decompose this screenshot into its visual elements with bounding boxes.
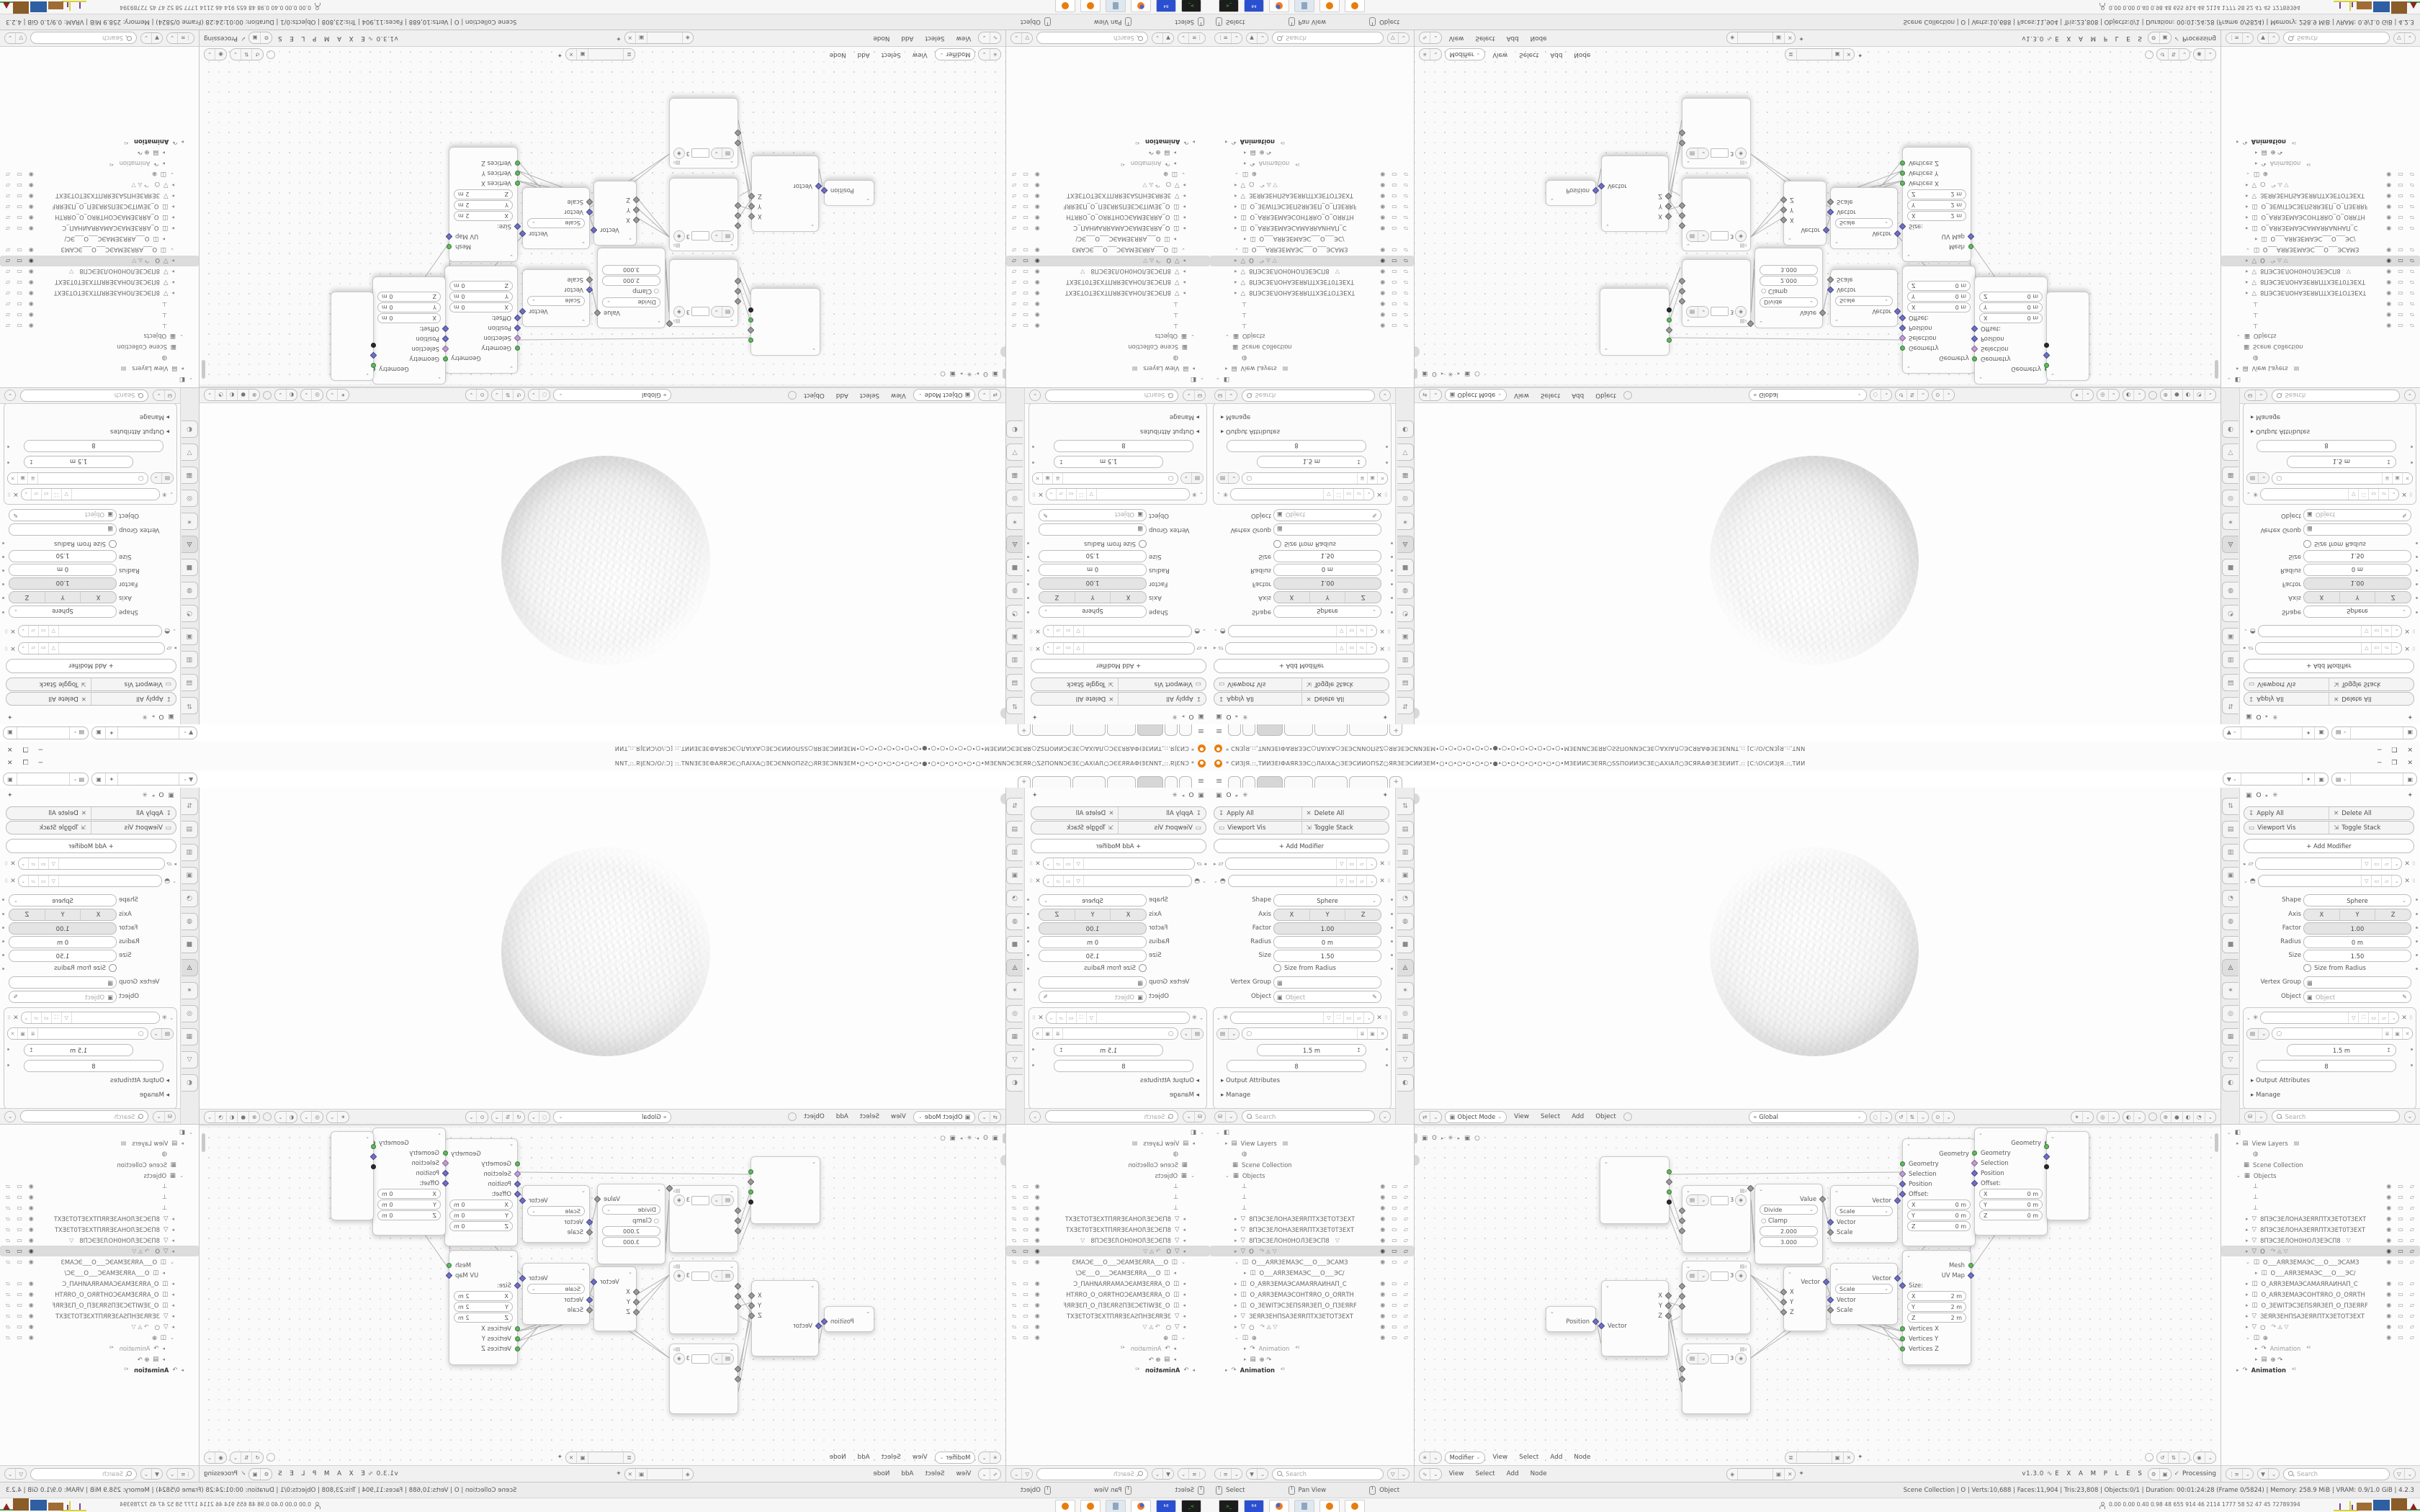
outliner-row-14[interactable]: ▸◫О___АЯRЗЕМАЭС___О___ЭС/ bbox=[2221, 1267, 2420, 1278]
axis-z-button[interactable]: Z bbox=[2375, 909, 2411, 920]
visibility-eye-icon[interactable]: ◉ bbox=[2386, 1323, 2391, 1330]
render-camera-icon[interactable]: ▱ bbox=[1404, 279, 1408, 286]
outliner-row-3[interactable]: ◍ bbox=[2221, 1148, 2420, 1159]
apply-all-button[interactable]: ↧Apply All bbox=[2244, 807, 2329, 819]
size-from-radius-radio[interactable]: Size from Radius bbox=[1084, 540, 1147, 548]
node-socket[interactable] bbox=[2044, 364, 2049, 369]
graph-node-14[interactable]: ⌄ bbox=[2046, 1131, 2089, 1220]
outliner-row-19[interactable]: ▸▽○↷ ◬ ▽◉▭▱ bbox=[2221, 1321, 2420, 1332]
graph-node-14[interactable]: ⌄ bbox=[331, 1131, 374, 1220]
render-camera-icon[interactable]: ▱ bbox=[1012, 290, 1016, 297]
visibility-eye-icon[interactable]: ◉ bbox=[2386, 1291, 2391, 1297]
menu-view[interactable]: View bbox=[1510, 1113, 1533, 1120]
properties-tab-13[interactable]: ◐ bbox=[1006, 420, 1023, 438]
node-field-y[interactable]: Y0 m bbox=[449, 292, 513, 302]
node-field-y[interactable]: Y0 m bbox=[377, 302, 441, 312]
render-camera-icon[interactable]: ▱ bbox=[1012, 1259, 1016, 1265]
visibility-eye-icon[interactable]: ◉ bbox=[29, 182, 34, 189]
visibility-eye-icon[interactable]: ◉ bbox=[1380, 279, 1385, 286]
viewport-display-icon[interactable]: ▭ bbox=[17, 1313, 22, 1319]
display-mode-button[interactable]: ⋮≡⌄ bbox=[2226, 32, 2254, 44]
render-camera-icon[interactable]: ▱ bbox=[2410, 1237, 2414, 1243]
outliner-row-5[interactable]: ⌄▦Objects bbox=[0, 331, 199, 342]
graph-node-6[interactable]: ⌄▤₃▤⌄3◈ bbox=[1682, 1344, 1751, 1414]
node-field-y[interactable]: Y0 m bbox=[1907, 1210, 1971, 1220]
properties-tab-11[interactable]: ▦ bbox=[2222, 467, 2238, 484]
render-camera-icon[interactable]: ▱ bbox=[2410, 1226, 2414, 1233]
viewport-display-icon[interactable]: ▭ bbox=[17, 182, 22, 189]
render-camera-icon[interactable]: ▱ bbox=[6, 1248, 10, 1254]
render-camera-icon[interactable]: ▱ bbox=[1012, 247, 1016, 253]
viewport-display-icon[interactable]: ▭ bbox=[1391, 290, 1397, 297]
outliner-row-13[interactable]: ⌄◫О___АЯRЗЕМАЭС___О___ЭСАМЗ◉▭▱ bbox=[2221, 245, 2420, 256]
editor-type-button[interactable]: ⛁⌄ bbox=[2244, 390, 2267, 402]
workspace-tab-4[interactable] bbox=[1107, 776, 1136, 788]
render-camera-icon[interactable]: ▱ bbox=[1012, 312, 1016, 318]
outliner-row-23[interactable]: ▸↷Animation⁴² bbox=[1006, 1364, 1210, 1375]
add-modifier-button[interactable]: + Add Modifier bbox=[2244, 839, 2414, 853]
viewport-display-icon[interactable]: ▭ bbox=[17, 247, 22, 253]
render-camera-icon[interactable]: ▱ bbox=[6, 269, 10, 275]
outliner-row-21[interactable]: ▸↷Animation⁴² bbox=[1210, 158, 1414, 169]
size-from-radius-radio[interactable]: Size from Radius bbox=[2303, 540, 2366, 548]
render-camera-icon[interactable]: ▱ bbox=[6, 258, 10, 264]
visibility-eye-icon[interactable]: ◉ bbox=[29, 1194, 34, 1200]
visibility-eye-icon[interactable]: ◉ bbox=[1380, 312, 1385, 318]
outliner-row-9[interactable]: ▸▽8ПЭСЗЕЛОНАЗЕЯRПТХЗЕТОТЗЕХТ◉▭▱ bbox=[1210, 1213, 1414, 1224]
graph-node-9[interactable]: ⌄VectorScale⌄VectorScale bbox=[1830, 269, 1898, 327]
outliner-row-13[interactable]: ⌄◫О___АЯRЗЕМАЭС___О___ЭСАМЗ◉▭▱ bbox=[1006, 245, 1210, 256]
node-field-z[interactable]: Z2 m bbox=[454, 1313, 513, 1323]
menu-select[interactable]: Select bbox=[1536, 392, 1564, 399]
xray-toggle[interactable]: ◐⌄ bbox=[2123, 390, 2146, 402]
render-camera-icon[interactable]: ▱ bbox=[6, 215, 10, 221]
filter-button[interactable]: ▽⌄ bbox=[1010, 32, 1033, 44]
toggle-stack-button[interactable]: ⇲Toggle Stack bbox=[1302, 678, 1389, 690]
viewport-display-icon[interactable]: ▭ bbox=[1023, 193, 1028, 199]
visibility-eye-icon[interactable]: ◉ bbox=[2386, 225, 2391, 232]
properties-tab-11[interactable]: ▦ bbox=[1006, 1028, 1023, 1045]
outliner-row-22[interactable]: ▸▤⊕ ↷ bbox=[0, 148, 199, 158]
outliner-row-17[interactable]: ▸◫О_ЗЕWІТЭСЗЕПSЯRЗЕП_О_ПЗЕЯRF◉▭▱ bbox=[0, 1300, 199, 1310]
graph-node-11[interactable]: ⌄MeshUV MapSize:X2 mY2 mZ2 mVertices XVe… bbox=[449, 1250, 518, 1365]
toggle-stack-button[interactable]: ⇲Toggle Stack bbox=[2329, 822, 2414, 834]
visibility-eye-icon[interactable]: ◉ bbox=[2386, 1259, 2391, 1265]
outliner-row-6[interactable]: ⊥◉▭▱ bbox=[1210, 1181, 1414, 1192]
properties-tab-13[interactable]: ◐ bbox=[1397, 1074, 1414, 1092]
visibility-eye-icon[interactable]: ◉ bbox=[2386, 312, 2391, 318]
workspace-tab-3[interactable] bbox=[1137, 724, 1163, 736]
nodes-input-value-field[interactable]: 1.5 m↥ bbox=[1257, 1044, 1366, 1056]
viewport-display-icon[interactable]: ▭ bbox=[2398, 290, 2403, 297]
viewport-display-icon[interactable]: ▭ bbox=[1391, 258, 1397, 264]
visibility-eye-icon[interactable]: ◉ bbox=[2386, 1280, 2391, 1287]
modifier-2-row[interactable]: ⌄◓▽▭▱⌄✕⠿ bbox=[1214, 625, 1391, 637]
editor-type-button[interactable]: ⛁⌄ bbox=[1214, 1111, 1237, 1122]
filter-button[interactable]: ▽⌄ bbox=[1387, 32, 1410, 44]
render-camera-icon[interactable]: ▱ bbox=[6, 1280, 10, 1287]
workspace-tab-1[interactable] bbox=[1228, 776, 1241, 788]
node-select-divide[interactable]: Divide⌄ bbox=[602, 297, 660, 307]
viewport-toggle-nub[interactable] bbox=[1415, 793, 1420, 804]
render-camera-icon[interactable]: ▱ bbox=[2410, 1334, 2414, 1341]
visibility-eye-icon[interactable]: ◉ bbox=[29, 323, 34, 329]
options-circle-icon[interactable] bbox=[1623, 1112, 1632, 1121]
graph-node-9[interactable]: ⌄VectorScale⌄VectorScale bbox=[522, 1185, 590, 1243]
node-socket[interactable] bbox=[515, 1326, 520, 1331]
viewport-display-icon[interactable]: ▭ bbox=[2398, 225, 2403, 232]
properties-tab-3[interactable]: ▥ bbox=[1397, 844, 1414, 861]
node-field-z[interactable]: Z0 m bbox=[377, 1210, 441, 1220]
render-camera-icon[interactable]: ▱ bbox=[2410, 279, 2414, 286]
node-field-y[interactable]: Y0 m bbox=[449, 1210, 513, 1220]
minimize-button[interactable]: ─ bbox=[39, 760, 42, 767]
outliner-row-8[interactable]: ⊥◉▭▱ bbox=[1006, 299, 1210, 310]
outliner-row-8[interactable]: ⊥◉▭▱ bbox=[0, 299, 199, 310]
node-select-scale[interactable]: Scale⌄ bbox=[527, 296, 585, 306]
graph-node-14[interactable]: ⌄ bbox=[2046, 292, 2089, 381]
workspace-tab-6[interactable] bbox=[1032, 776, 1071, 788]
viewport-display-icon[interactable]: ▭ bbox=[17, 204, 22, 210]
outliner-row-12[interactable]: ▸▽O↷ ◬ ▽◉▭▱ bbox=[1006, 256, 1210, 266]
radius-field[interactable]: 0 m bbox=[1039, 564, 1147, 576]
outliner-row-1[interactable]: ⌄◧ bbox=[1210, 374, 1414, 385]
graph-node-1[interactable]: ⌄Position bbox=[824, 1306, 874, 1332]
outliner-row-12[interactable]: ▸▽O↷ ◬ ▽◉▭▱ bbox=[2221, 256, 2420, 266]
nodes-modifier-header[interactable]: ⌄✳▽⛶▭▱⌄✕⠿ bbox=[1032, 1012, 1204, 1024]
factor-slider[interactable]: 1.00 bbox=[1273, 577, 1381, 590]
outliner-row-17[interactable]: ▸◫О_ЗЕWІТЭСЗЕПSЯRЗЕП_О_ПЗЕЯRF◉▭▱ bbox=[1210, 1300, 1414, 1310]
axis-y-button[interactable]: Y bbox=[1310, 909, 1346, 920]
render-camera-icon[interactable]: ▱ bbox=[1012, 1237, 1016, 1243]
outliner-row-11[interactable]: ▸▽8ПЭСЗЕЛОН0НОЛЗЕЭСП8▽◉▭▱ bbox=[0, 1235, 199, 1246]
outliner-row-13[interactable]: ⌄◫О___АЯRЗЕМАЭС___О___ЭСАМЗ◉▭▱ bbox=[1210, 1256, 1414, 1267]
taskbar-app-firefox[interactable] bbox=[1131, 0, 1151, 12]
pin-icon[interactable]: ✦ bbox=[2407, 792, 2413, 799]
render-camera-icon[interactable]: ▱ bbox=[6, 182, 10, 189]
size-from-radius-radio[interactable]: Size from Radius bbox=[54, 540, 117, 548]
render-camera-icon[interactable]: ▱ bbox=[6, 290, 10, 297]
visibility-eye-icon[interactable]: ◉ bbox=[2386, 1226, 2391, 1233]
add-modifier-button[interactable]: + Add Modifier bbox=[6, 659, 176, 673]
outliner-row-14[interactable]: ▸◫О___АЯRЗЕМАЭС___О___ЭС/ bbox=[0, 1267, 199, 1278]
node-editor-canvas[interactable]: ▣ O ▸ ✳ ▸ ▣ ○ ⌄Position⌄XYZVector⌄⌄▤₃▤⌄3… bbox=[1415, 47, 2220, 384]
graph-node-14[interactable]: ⌄ bbox=[331, 292, 374, 381]
visibility-eye-icon[interactable]: ◉ bbox=[29, 1248, 34, 1254]
outliner-row-4[interactable]: ▦Scene Collection bbox=[0, 342, 199, 353]
mode-dropdown[interactable]: ▣Object Mode⌄ bbox=[1445, 390, 1507, 402]
footer-options-button[interactable]: ⌄ bbox=[1379, 1111, 1391, 1122]
apply-all-button[interactable]: ↧Apply All bbox=[1119, 693, 1206, 705]
delete-all-button[interactable]: ✕Delete All bbox=[6, 807, 91, 819]
outliner-row-14[interactable]: ▸◫О___АЯRЗЕМАЭС___О___ЭС/ bbox=[1006, 1267, 1210, 1278]
outliner-row-2[interactable]: ▸▤View Layers▤ bbox=[1210, 364, 1414, 374]
properties-tab-2[interactable]: ▤ bbox=[181, 674, 198, 691]
render-camera-icon[interactable]: ▱ bbox=[2410, 193, 2414, 199]
visibility-eye-icon[interactable]: ◉ bbox=[29, 279, 34, 286]
radius-field[interactable]: 0 m bbox=[2303, 564, 2411, 576]
axis-y-button[interactable]: Y bbox=[2340, 909, 2376, 920]
radius-field[interactable]: 0 m bbox=[9, 936, 117, 948]
visibility-eye-icon[interactable]: ◉ bbox=[1380, 1215, 1385, 1222]
scene-filter-button[interactable]: ▼⌄ bbox=[1246, 32, 1268, 44]
properties-tab-12[interactable]: ▽ bbox=[2222, 444, 2238, 461]
axis-y-button[interactable]: Y bbox=[1075, 909, 1111, 920]
properties-tab-2[interactable]: ▤ bbox=[1006, 674, 1023, 691]
visibility-eye-icon[interactable]: ◉ bbox=[2386, 1205, 2391, 1211]
outliner-row-3[interactable]: ◍ bbox=[1006, 353, 1210, 364]
scene-copy-icon[interactable]: ▣ bbox=[92, 773, 105, 785]
properties-tab-8-modifiers-active[interactable]: ◬ bbox=[181, 959, 198, 976]
voxel-sphere-object[interactable] bbox=[1710, 456, 1919, 665]
render-camera-icon[interactable]: ▱ bbox=[1404, 301, 1408, 307]
properties-tab-7[interactable]: ■ bbox=[1397, 936, 1414, 953]
visibility-eye-icon[interactable]: ◉ bbox=[1035, 1280, 1040, 1287]
node-field-y[interactable]: Y0 m bbox=[377, 1200, 441, 1210]
editor-type-button[interactable]: ⛁⌄ bbox=[1183, 1111, 1206, 1122]
render-camera-icon[interactable]: ▱ bbox=[1012, 301, 1016, 307]
nodes-count-field[interactable]: 8 bbox=[2257, 440, 2396, 452]
display-mode-button[interactable]: ⋮≡⌄ bbox=[1178, 1468, 1206, 1480]
outliner-search-input[interactable]: Search bbox=[1272, 1468, 1384, 1480]
viewport-display-icon[interactable]: ▭ bbox=[2398, 269, 2403, 275]
render-camera-icon[interactable]: ▱ bbox=[1012, 1280, 1016, 1287]
properties-tab-6[interactable]: ◍ bbox=[1397, 582, 1414, 599]
viewport-display-icon[interactable]: ▭ bbox=[2398, 1248, 2403, 1254]
visibility-eye-icon[interactable]: ◉ bbox=[1035, 171, 1040, 178]
node-tree-selector[interactable]: ◈▣✕ bbox=[624, 1468, 694, 1480]
properties-tab-4[interactable]: ▣ bbox=[1006, 867, 1023, 884]
properties-tab-7[interactable]: ■ bbox=[2222, 936, 2238, 953]
outliner-row-12[interactable]: ▸▽O↷ ◬ ▽◉▭▱ bbox=[1210, 1246, 1414, 1256]
properties-tab-9[interactable]: ✶ bbox=[1006, 982, 1023, 999]
render-camera-icon[interactable]: ▱ bbox=[1012, 1205, 1016, 1211]
manage-collapse[interactable]: ▸ Manage bbox=[2251, 1092, 2280, 1099]
outliner-search-input[interactable]: Search bbox=[1036, 1468, 1148, 1480]
properties-tab-2[interactable]: ▤ bbox=[2222, 674, 2238, 691]
render-camera-icon[interactable]: ▱ bbox=[1012, 182, 1016, 189]
properties-tab-4[interactable]: ▣ bbox=[181, 867, 198, 884]
outliner-row-3[interactable]: ◍ bbox=[1210, 1148, 1414, 1159]
menu-view[interactable]: View bbox=[887, 392, 910, 399]
node-id-field[interactable]: ▤⌄3◈ bbox=[1682, 231, 1750, 241]
outliner-row-13[interactable]: ⌄◫О___АЯRЗЕМАЭС___О___ЭСАМЗ◉▭▱ bbox=[1210, 245, 1414, 256]
modifier-mode-dropdown[interactable]: Modifier⌄ bbox=[1445, 1452, 1486, 1464]
apply-all-button[interactable]: ↧Apply All bbox=[91, 693, 176, 705]
properties-tab-12[interactable]: ▽ bbox=[181, 444, 198, 461]
node-field-x[interactable]: X0 m bbox=[1907, 302, 1971, 312]
outliner-row-12[interactable]: ▸▽O↷ ◬ ▽◉▭▱ bbox=[0, 256, 199, 266]
outliner-row-22[interactable]: ▸▤⊕ ↷ bbox=[2221, 1354, 2420, 1364]
size-field[interactable]: 1.50 bbox=[1039, 550, 1147, 562]
node-field-z[interactable]: Z0 m bbox=[1979, 292, 2043, 302]
minimize-button[interactable]: ─ bbox=[39, 745, 42, 752]
object-field[interactable]: ▣Object✎ bbox=[1273, 991, 1381, 1003]
viewport-display-icon[interactable]: ▭ bbox=[1023, 1226, 1028, 1233]
workspace-tab-4[interactable] bbox=[1284, 724, 1313, 736]
outliner-row-7[interactable]: ⊥◉▭▱ bbox=[0, 310, 199, 320]
modifier-1-row[interactable]: ▸▱▽▭▱⌄✕⠿ bbox=[2244, 642, 2416, 654]
node-field-x[interactable]: X0 m bbox=[449, 302, 513, 312]
visibility-eye-icon[interactable]: ◉ bbox=[1380, 1313, 1385, 1319]
render-camera-icon[interactable]: ▱ bbox=[6, 1302, 10, 1308]
graph-node-4[interactable]: ⌄▤₃▤⌄3◈ bbox=[1682, 1185, 1751, 1253]
render-camera-icon[interactable]: ▱ bbox=[2410, 171, 2414, 178]
editor-type-button[interactable]: ⇄⌄ bbox=[1419, 390, 1442, 402]
canvas-scrollbar[interactable] bbox=[2215, 360, 2218, 379]
visibility-eye-icon[interactable]: ◉ bbox=[29, 225, 34, 232]
nodes-modifier-header[interactable]: ⌄✳▽⛶▭▱⌄✕⠿ bbox=[1216, 488, 1388, 500]
properties-tab-9[interactable]: ✶ bbox=[1006, 513, 1023, 530]
outliner-row-18[interactable]: ▸▽ЗЕЯRЗЕНПSАЗЕЯRПТХЗЕТОТЗЕХТ◉▭▱ bbox=[1006, 1310, 1210, 1321]
visibility-eye-icon[interactable]: ◉ bbox=[1380, 290, 1385, 297]
scene-pin-icon[interactable]: ✦ bbox=[2303, 773, 2316, 785]
properties-tab-3[interactable]: ▥ bbox=[1397, 651, 1414, 668]
visibility-eye-icon[interactable]: ◉ bbox=[1380, 301, 1385, 307]
properties-tab-2[interactable]: ▤ bbox=[181, 821, 198, 838]
size-field[interactable]: 1.50 bbox=[2303, 950, 2411, 962]
viewport-display-icon[interactable]: ▭ bbox=[17, 258, 22, 264]
pin-icon[interactable]: ✦ bbox=[7, 792, 13, 799]
outliner-row-9[interactable]: ▸▽8ПЭСЗЕЛОНАЗЕЯRПТХЗЕТОТЗЕХТ◉▭▱ bbox=[0, 1213, 199, 1224]
graph-node-3[interactable]: ⌄ bbox=[750, 1156, 820, 1224]
editor-type-button[interactable]: ⛁⌄ bbox=[153, 390, 176, 402]
taskbar-app-floppy[interactable]: 64 bbox=[1156, 1500, 1176, 1512]
search-input[interactable]: Search bbox=[20, 390, 148, 402]
viewport-display-icon[interactable]: ▭ bbox=[1391, 1313, 1397, 1319]
delete-all-button[interactable]: ✕Delete All bbox=[1031, 693, 1119, 705]
menu-add[interactable]: Add bbox=[832, 1113, 853, 1120]
visibility-eye-icon[interactable]: ◉ bbox=[2386, 171, 2391, 178]
output-attributes-collapse[interactable]: ▸ Output Attributes bbox=[110, 428, 169, 435]
examples-buttons[interactable]: ⚙▣ bbox=[248, 32, 272, 45]
node-socket[interactable] bbox=[447, 245, 452, 250]
size-field[interactable]: 1.50 bbox=[9, 550, 117, 562]
render-camera-icon[interactable]: ▱ bbox=[2410, 1205, 2414, 1211]
scene-filter-button[interactable]: ▼⌄ bbox=[2257, 32, 2280, 44]
node-field-y[interactable]: Y2 m bbox=[454, 1302, 513, 1312]
render-camera-icon[interactable]: ▱ bbox=[2410, 269, 2414, 275]
viewport-display-icon[interactable]: ▭ bbox=[1391, 247, 1397, 253]
visibility-eye-icon[interactable]: ◉ bbox=[1035, 290, 1040, 297]
shading-mode-buttons[interactable]: ⊕●◐◔⌄ bbox=[204, 390, 260, 402]
node-socket[interactable] bbox=[748, 1169, 753, 1174]
outliner-row-11[interactable]: ▸▽8ПЭСЗЕЛОН0НОЛЗЕЭСП8▽◉▭▱ bbox=[0, 266, 199, 277]
visibility-eye-icon[interactable]: ◉ bbox=[29, 290, 34, 297]
render-camera-icon[interactable]: ▱ bbox=[1012, 279, 1016, 286]
pivot-toggle[interactable]: ⊙⌄ bbox=[1932, 1111, 1955, 1123]
workspace-tab-4[interactable] bbox=[1107, 724, 1136, 736]
visibility-eye-icon[interactable]: ◉ bbox=[1035, 258, 1040, 264]
node-select-scale[interactable]: Scale⌄ bbox=[527, 1284, 585, 1294]
footer-options-button[interactable]: ⌄ bbox=[4, 1111, 16, 1122]
viewport-display-icon[interactable]: ▭ bbox=[1391, 1183, 1397, 1189]
properties-tab-10[interactable]: ◎ bbox=[181, 1005, 198, 1022]
outliner-row-23[interactable]: ▸↷Animation⁴² bbox=[1210, 1364, 1414, 1375]
viewport-display-icon[interactable]: ▭ bbox=[2398, 1313, 2403, 1319]
graph-node-9[interactable]: ⌄VectorScale⌄VectorScale bbox=[1830, 1185, 1898, 1243]
viewport-display-icon[interactable]: ▭ bbox=[17, 1302, 22, 1308]
gizmo-toggle[interactable]: ✶⌄ bbox=[326, 1111, 349, 1123]
visibility-eye-icon[interactable]: ◉ bbox=[1035, 323, 1040, 329]
render-camera-icon[interactable]: ▱ bbox=[6, 279, 10, 286]
outliner-row-9[interactable]: ▸▽8ПЭСЗЕЛОНАЗЕЯRПТХЗЕТОТЗЕХТ◉▭▱ bbox=[1006, 288, 1210, 299]
workspace-tab-1[interactable] bbox=[1179, 724, 1192, 736]
outliner-row-3[interactable]: ◍ bbox=[1006, 1148, 1210, 1159]
outliner-row-4[interactable]: ▦Scene Collection bbox=[1210, 342, 1414, 353]
toggle-stack-button[interactable]: ⇲Toggle Stack bbox=[1031, 678, 1119, 690]
visibility-eye-icon[interactable]: ◉ bbox=[1380, 1248, 1385, 1254]
viewport-display-icon[interactable]: ▭ bbox=[2398, 193, 2403, 199]
render-camera-icon[interactable]: ▱ bbox=[1404, 1237, 1408, 1243]
vertex-group-field[interactable]: ▦ bbox=[9, 523, 117, 536]
examples-buttons[interactable]: ⚙▣ bbox=[2148, 1468, 2172, 1480]
apply-all-button[interactable]: ↧Apply All bbox=[91, 807, 176, 819]
outliner-row-10[interactable]: ▸▽8ПЭСЗЕЛОНАЗЕЯRПТХЗЕТ0ТЗЕХТ◉▭▱ bbox=[1210, 277, 1414, 288]
outliner-row-19[interactable]: ▸▽○↷ ◬ ▽◉▭▱ bbox=[1006, 180, 1210, 191]
outliner-row-9[interactable]: ▸▽8ПЭСЗЕЛОНАЗЕЯRПТХЗЕТОТЗЕХТ◉▭▱ bbox=[0, 288, 199, 299]
outliner-row-6[interactable]: ⊥◉▭▱ bbox=[1006, 1181, 1210, 1192]
node-value-field[interactable]: 2.000 bbox=[1760, 1226, 1818, 1236]
footer-options-button[interactable]: ⌄ bbox=[1029, 390, 1041, 402]
viewport-display-icon[interactable]: ▭ bbox=[17, 1194, 22, 1200]
node-socket[interactable] bbox=[1900, 1326, 1905, 1331]
node-socket[interactable] bbox=[1900, 1336, 1905, 1341]
node-socket[interactable] bbox=[1900, 161, 1905, 166]
render-camera-icon[interactable]: ▱ bbox=[1012, 269, 1016, 275]
properties-tab-7[interactable]: ■ bbox=[1006, 559, 1023, 576]
node-field-y[interactable]: Y2 m bbox=[1907, 200, 1966, 210]
vertex-group-field[interactable]: ▦ bbox=[2303, 523, 2411, 536]
outliner-row-15[interactable]: ▸◫О_АЯRЗЕМАЭСАМАЯRАИНАП_С◉▭▱ bbox=[0, 223, 199, 234]
shape-dropdown[interactable]: Sphere⌄ bbox=[1039, 894, 1147, 906]
search-input[interactable]: Search bbox=[1242, 1110, 1375, 1122]
menu-view[interactable]: View bbox=[887, 1113, 910, 1120]
factor-slider[interactable]: 1.00 bbox=[2303, 577, 2411, 590]
axis-z-button[interactable]: Z bbox=[1345, 592, 1381, 603]
render-camera-icon[interactable]: ▱ bbox=[6, 171, 10, 178]
outliner-row-1[interactable]: ⌄◧ bbox=[2221, 374, 2420, 385]
node-field-z[interactable]: Z2 m bbox=[1907, 1313, 1966, 1323]
output-attributes-collapse[interactable]: ▸ Output Attributes bbox=[1221, 428, 1280, 435]
render-camera-icon[interactable]: ▱ bbox=[2410, 301, 2414, 307]
apply-all-button[interactable]: ↧Apply All bbox=[1214, 807, 1302, 819]
maximize-button[interactable]: ❒ bbox=[2391, 745, 2397, 752]
menu-object[interactable]: Object bbox=[1591, 1113, 1621, 1120]
menu-select[interactable]: Select bbox=[856, 1113, 884, 1120]
node-id-field[interactable]: ▤⌄3◈ bbox=[1682, 1354, 1750, 1364]
viewport-display-icon[interactable]: ▭ bbox=[1391, 312, 1397, 318]
graph-node-6[interactable]: ⌄▤₃▤⌄3◈ bbox=[669, 1344, 738, 1414]
object-field[interactable]: ▣Object✎ bbox=[2303, 509, 2411, 521]
visibility-eye-icon[interactable]: ◉ bbox=[1035, 1248, 1040, 1254]
nodes-count-field[interactable]: 8 bbox=[1227, 1060, 1366, 1072]
visibility-eye-icon[interactable]: ◉ bbox=[29, 1334, 34, 1341]
viewport-display-icon[interactable]: ▭ bbox=[2398, 1183, 2403, 1189]
viewport-display-icon[interactable]: ▭ bbox=[1023, 312, 1028, 318]
render-camera-icon[interactable]: ▱ bbox=[1404, 1334, 1408, 1341]
viewport-display-icon[interactable]: ▭ bbox=[17, 1226, 22, 1233]
node-group-datablock[interactable]: ▤⌄○≣▣✕ bbox=[1032, 472, 1204, 485]
render-camera-icon[interactable]: ▱ bbox=[1404, 1205, 1408, 1211]
overlays-toggle[interactable]: ◎⌄ bbox=[300, 390, 323, 402]
axis-x-button[interactable]: X bbox=[1110, 592, 1146, 603]
modifier-1-row[interactable]: ▸▱▽▭▱⌄✕⠿ bbox=[1029, 858, 1206, 870]
render-camera-icon[interactable]: ▱ bbox=[1012, 225, 1016, 232]
object-field[interactable]: ▣Object✎ bbox=[9, 991, 117, 1003]
render-camera-icon[interactable]: ▱ bbox=[1404, 1291, 1408, 1297]
viewlayer-copy-icon[interactable]: ▣ bbox=[4, 727, 17, 739]
